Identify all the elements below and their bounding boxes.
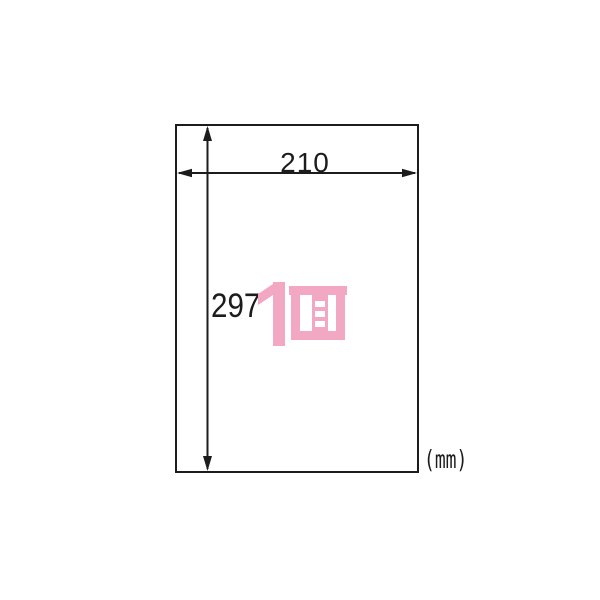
height-arrow-bottom-head-icon — [203, 456, 212, 471]
kanji-men-notch-2 — [315, 311, 325, 317]
kanji-men-top-bar — [289, 286, 347, 295]
unit-label: (mm) — [424, 447, 467, 472]
kanji-men-bottom-bar — [291, 331, 345, 340]
kanji-men-notch-1 — [315, 301, 325, 307]
kanji-men-notch-3 — [315, 321, 325, 327]
digit-one-stem — [273, 282, 285, 346]
height-dimension-label: 297 — [211, 289, 260, 323]
width-dimension-label: 210 — [176, 149, 434, 177]
sheet-dimension-diagram: 210 297 (mm) — [0, 0, 600, 600]
digit-one-flag — [258, 284, 273, 305]
face-count-glyph — [256, 281, 348, 346]
height-arrow-top-head-icon — [203, 126, 212, 141]
face-count-label — [256, 281, 348, 346]
